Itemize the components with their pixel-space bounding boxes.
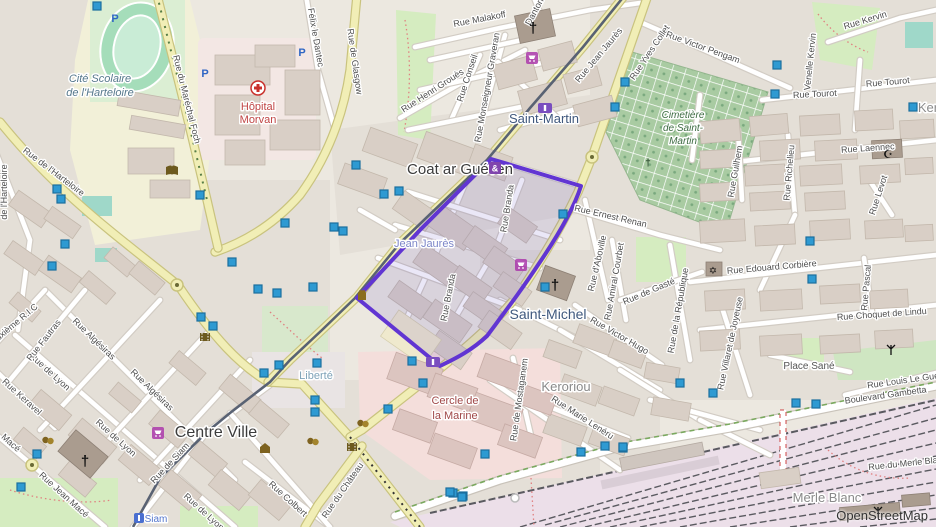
node-marker[interactable]: [196, 191, 204, 199]
node-marker[interactable]: [773, 61, 781, 69]
node-marker[interactable]: [619, 443, 627, 451]
node-marker[interactable]: [17, 483, 25, 491]
node-marker[interactable]: [254, 285, 262, 293]
svg-text:P: P: [201, 68, 208, 80]
node-marker[interactable]: [33, 450, 41, 458]
place-label: Morvan: [240, 114, 277, 126]
place-label: Ker: [918, 100, 936, 115]
building: [800, 114, 841, 136]
node-marker[interactable]: [806, 237, 814, 245]
building: [225, 140, 265, 165]
tram-stop-icon: [426, 357, 440, 367]
place-label: Hôpital: [241, 101, 275, 113]
node-marker[interactable]: [197, 313, 205, 321]
mosque-icon: ☪: [883, 149, 893, 161]
building: [755, 224, 796, 246]
tram-stop-blue-icon: [134, 513, 144, 523]
tram-stop-icon: [538, 103, 552, 113]
monument-icon: [358, 291, 366, 300]
map-canvas[interactable]: Rue du Maréchal FochRue de l'Harteloired…: [0, 0, 936, 527]
supermarket-icon: [515, 259, 527, 271]
building: [805, 191, 846, 211]
svg-text:✡: ✡: [709, 266, 717, 277]
place-label: Cité Scolaire: [69, 73, 131, 85]
node-marker[interactable]: [419, 379, 427, 387]
node-marker[interactable]: [676, 379, 684, 387]
parking-icon: P: [298, 47, 305, 59]
svg-text:†: †: [551, 277, 559, 294]
parking-icon: P: [201, 68, 208, 80]
building: [150, 180, 190, 198]
building: [760, 289, 803, 311]
hospital-cross-icon: [251, 81, 265, 95]
svg-text:&: &: [492, 164, 499, 174]
building: [870, 289, 909, 309]
place-label: Jean Jaurès: [394, 238, 454, 250]
node-marker[interactable]: [458, 493, 466, 501]
node-marker[interactable]: [311, 396, 319, 404]
node-marker[interactable]: [53, 185, 61, 193]
node-marker[interactable]: [577, 448, 585, 456]
node-marker[interactable]: [313, 359, 321, 367]
building: [749, 113, 789, 136]
building: [902, 493, 931, 507]
supermarket-icon: [152, 427, 164, 439]
node-marker[interactable]: [275, 361, 283, 369]
node-marker[interactable]: [909, 103, 917, 111]
building: [699, 118, 741, 143]
svg-text:†: †: [645, 158, 651, 169]
place-label: Keroriou: [541, 379, 590, 394]
building: [285, 70, 320, 115]
building: [745, 164, 786, 186]
cinema-icon: [347, 443, 357, 451]
svg-text:†: †: [81, 453, 89, 470]
building: [820, 284, 861, 304]
node-marker[interactable]: [93, 2, 101, 10]
place-label: Merle Blanc: [793, 490, 862, 505]
openstreetmap-view[interactable]: Rue du Maréchal FochRue de l'Harteloired…: [0, 0, 936, 527]
svg-text:†: †: [529, 20, 537, 37]
node-marker[interactable]: [281, 219, 289, 227]
node-marker[interactable]: [309, 283, 317, 291]
node-marker[interactable]: [330, 223, 338, 231]
building: [699, 219, 745, 243]
place-label: Saint-Martin: [509, 111, 579, 126]
place-label: Siam: [145, 514, 168, 525]
node-marker[interactable]: [209, 322, 217, 330]
node-marker[interactable]: [57, 195, 65, 203]
place-label: Liberté: [299, 370, 333, 382]
place-label: Cimetière: [662, 110, 705, 121]
svg-text:P: P: [298, 47, 305, 59]
node-marker[interactable]: [709, 389, 717, 397]
node-marker[interactable]: [621, 78, 629, 86]
cemetery-cross-icon: †: [645, 158, 651, 169]
place-label: Martin: [669, 136, 697, 147]
building: [865, 219, 904, 239]
building: [900, 119, 935, 139]
church-icon: †: [529, 20, 537, 37]
node-marker[interactable]: [384, 405, 392, 413]
building: [820, 334, 861, 354]
node-marker[interactable]: [273, 289, 281, 297]
place-label: Saint-Michel: [509, 306, 586, 322]
place-label: Cercle de: [431, 395, 478, 407]
building: [760, 334, 803, 356]
building: [905, 157, 934, 174]
node-marker[interactable]: [260, 369, 268, 377]
node-marker[interactable]: [228, 258, 236, 266]
synagogue-icon: ✡: [709, 266, 717, 277]
node-marker[interactable]: [339, 227, 347, 235]
place-label: Centre Ville: [175, 424, 258, 441]
place-label: de Saint-: [663, 123, 704, 134]
node-marker[interactable]: [61, 240, 69, 248]
node-marker[interactable]: [601, 442, 609, 450]
building: [800, 164, 843, 186]
node-marker[interactable]: [395, 187, 403, 195]
node-marker[interactable]: [559, 210, 567, 218]
node-marker[interactable]: [352, 161, 360, 169]
svg-text:☪: ☪: [883, 149, 893, 161]
building: [270, 120, 320, 150]
place-label: Place Sané: [783, 361, 835, 372]
node-marker[interactable]: [311, 408, 319, 416]
node-marker[interactable]: [808, 275, 816, 283]
node-marker[interactable]: [380, 190, 388, 198]
supermarket-icon: [526, 52, 538, 64]
node-marker[interactable]: [408, 357, 416, 365]
church-icon: †: [551, 277, 559, 294]
amp-badge-icon: &: [489, 162, 501, 174]
street-label: de l'Harteloire: [0, 164, 9, 219]
node-marker[interactable]: [611, 103, 619, 111]
place-label: de l'Harteloire: [66, 87, 134, 99]
building: [810, 219, 851, 241]
church-icon: †: [81, 453, 89, 470]
cinema-icon: [200, 333, 210, 341]
node-marker[interactable]: [446, 488, 454, 496]
svg-text:P: P: [111, 13, 118, 25]
building: [255, 45, 295, 67]
place-label: la Marine: [432, 410, 477, 422]
node-marker[interactable]: [792, 399, 800, 407]
node-marker[interactable]: [481, 450, 489, 458]
node-marker[interactable]: [48, 262, 56, 270]
node-marker[interactable]: [771, 90, 779, 98]
node-marker[interactable]: [541, 283, 549, 291]
building: [905, 224, 934, 241]
building: [855, 109, 894, 131]
parking-icon: P: [111, 13, 118, 25]
node-marker[interactable]: [812, 400, 820, 408]
osm-attribution[interactable]: OpenStreetMap: [836, 508, 928, 523]
